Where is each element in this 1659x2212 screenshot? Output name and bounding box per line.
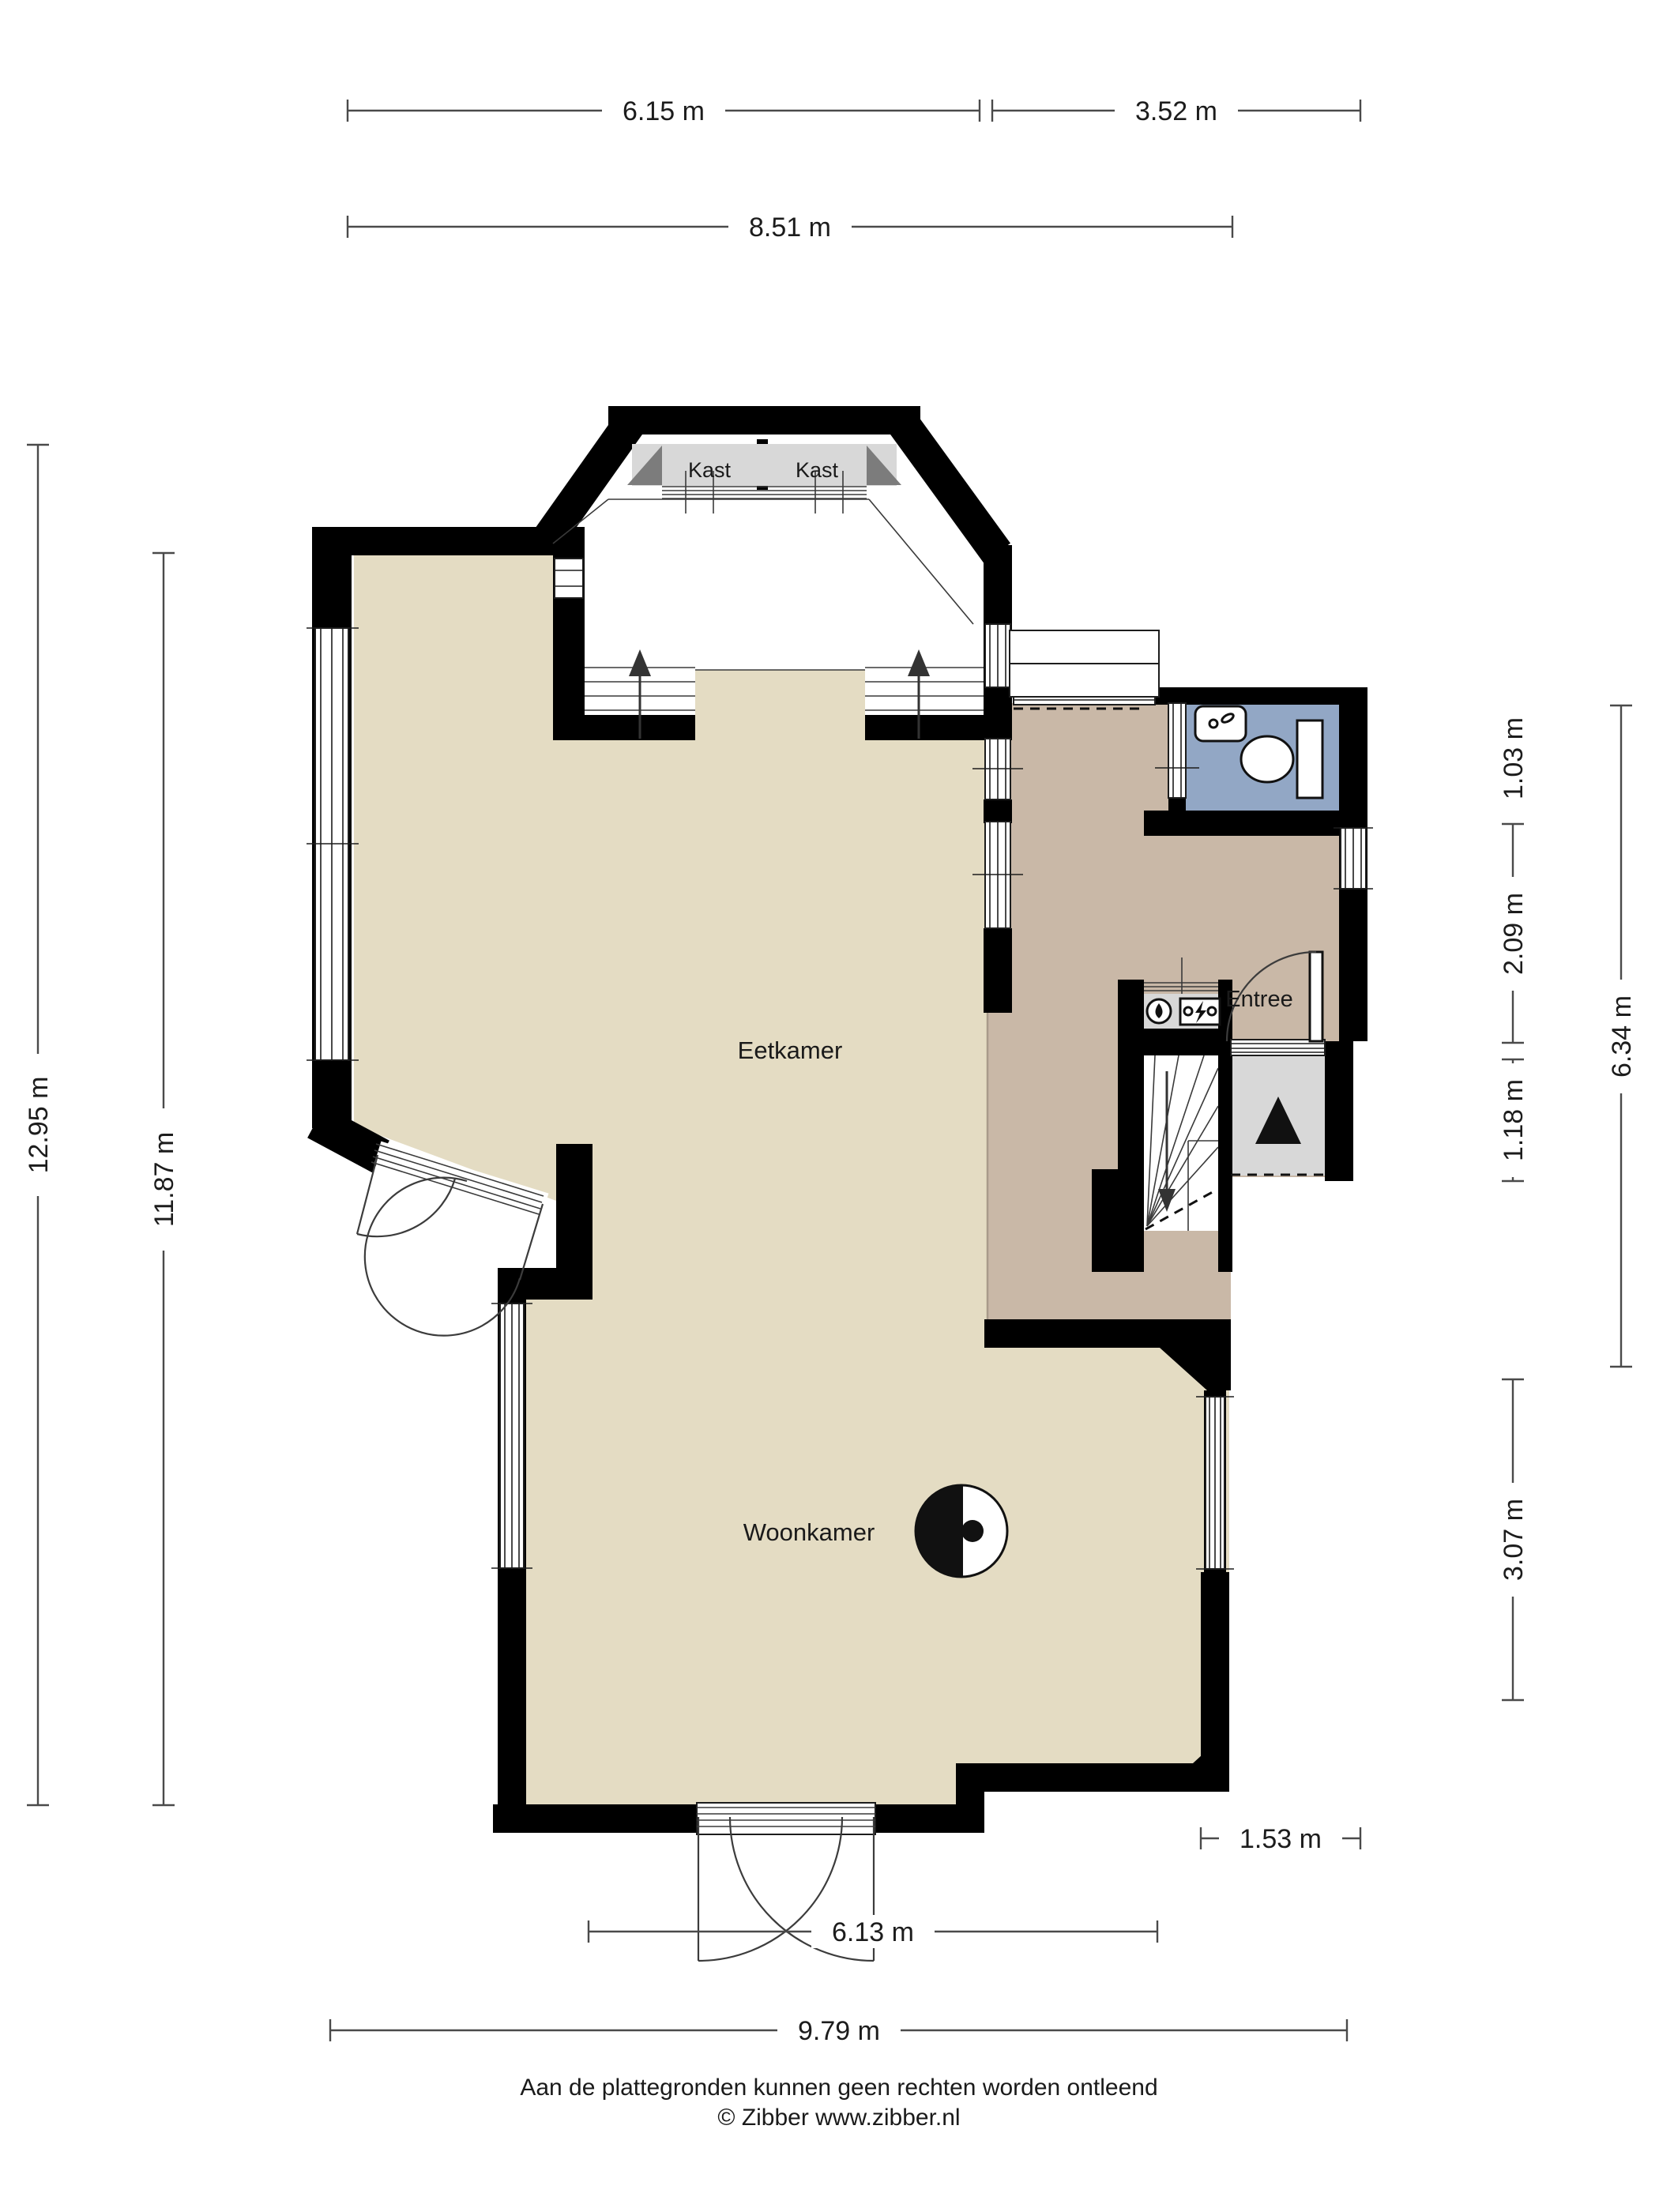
floor-plan: Kast Kast Eetkamer Entree Woonkamer 6.15… xyxy=(0,0,1659,2212)
svg-text:6.15 m: 6.15 m xyxy=(623,96,705,126)
dimension-left-outer: 12.95 m xyxy=(21,445,55,1805)
dimension-bottom-overall: 9.79 m xyxy=(330,2014,1347,2047)
sink-icon xyxy=(1195,706,1246,741)
stairs-down xyxy=(1144,1055,1218,1231)
dimension-right-woonkamer: 3.07 m xyxy=(1496,1379,1529,1700)
fireplace-icon xyxy=(916,1485,1007,1577)
svg-text:6.34 m: 6.34 m xyxy=(1607,995,1637,1078)
dimension-right-porch: 1.18 m xyxy=(1496,1059,1529,1181)
eetkamer-label: Eetkamer xyxy=(738,1036,843,1064)
svg-text:3.52 m: 3.52 m xyxy=(1135,96,1217,126)
svg-text:11.87 m: 11.87 m xyxy=(149,1132,179,1227)
outside-steps xyxy=(1010,630,1159,697)
toilet-cistern xyxy=(1297,720,1322,798)
entree-label: Entree xyxy=(1225,987,1292,1012)
svg-text:12.95 m: 12.95 m xyxy=(24,1077,54,1174)
svg-text:1.03 m: 1.03 m xyxy=(1499,717,1529,799)
floorplan-page: Kast Kast Eetkamer Entree Woonkamer 6.15… xyxy=(0,0,1659,2212)
svg-text:8.51 m: 8.51 m xyxy=(749,213,831,243)
window-stair-room-left xyxy=(555,559,583,598)
dimension-top-overall: 8.51 m xyxy=(348,210,1232,243)
kast-floor xyxy=(632,444,897,486)
svg-text:6.13 m: 6.13 m xyxy=(832,1917,914,1947)
footer: Aan de plattegronden kunnen geen rechten… xyxy=(520,2075,1157,2131)
footer-disclaimer: Aan de plattegronden kunnen geen rechten… xyxy=(520,2075,1157,2101)
door-leaf xyxy=(1310,952,1322,1041)
window-stair-room-right xyxy=(985,624,1010,687)
dimension-right-entree: 2.09 m xyxy=(1496,824,1529,1043)
svg-text:9.79 m: 9.79 m xyxy=(798,2016,880,2046)
kast-left-label: Kast xyxy=(688,458,732,482)
dimension-bottom-step: 1.53 m xyxy=(1201,1822,1360,1855)
kast-right-label: Kast xyxy=(796,458,839,482)
dimension-bottom-doors: 6.13 m xyxy=(589,1915,1157,1948)
svg-text:1.18 m: 1.18 m xyxy=(1499,1079,1529,1161)
footer-credit: © Zibber www.zibber.nl xyxy=(717,2105,960,2131)
svg-text:1.53 m: 1.53 m xyxy=(1240,1824,1322,1854)
dimension-left-inner: 11.87 m xyxy=(147,553,180,1805)
dimension-right-outer: 6.34 m xyxy=(1604,705,1638,1367)
dimension-top-right: 3.52 m xyxy=(992,94,1360,127)
svg-text:3.07 m: 3.07 m xyxy=(1499,1499,1529,1581)
toilet-icon xyxy=(1241,736,1293,782)
dimension-top-left: 6.15 m xyxy=(348,94,980,127)
dimension-right-toilet: 1.03 m xyxy=(1496,702,1529,815)
woonkamer-label: Woonkamer xyxy=(743,1518,875,1546)
svg-text:2.09 m: 2.09 m xyxy=(1499,893,1529,975)
